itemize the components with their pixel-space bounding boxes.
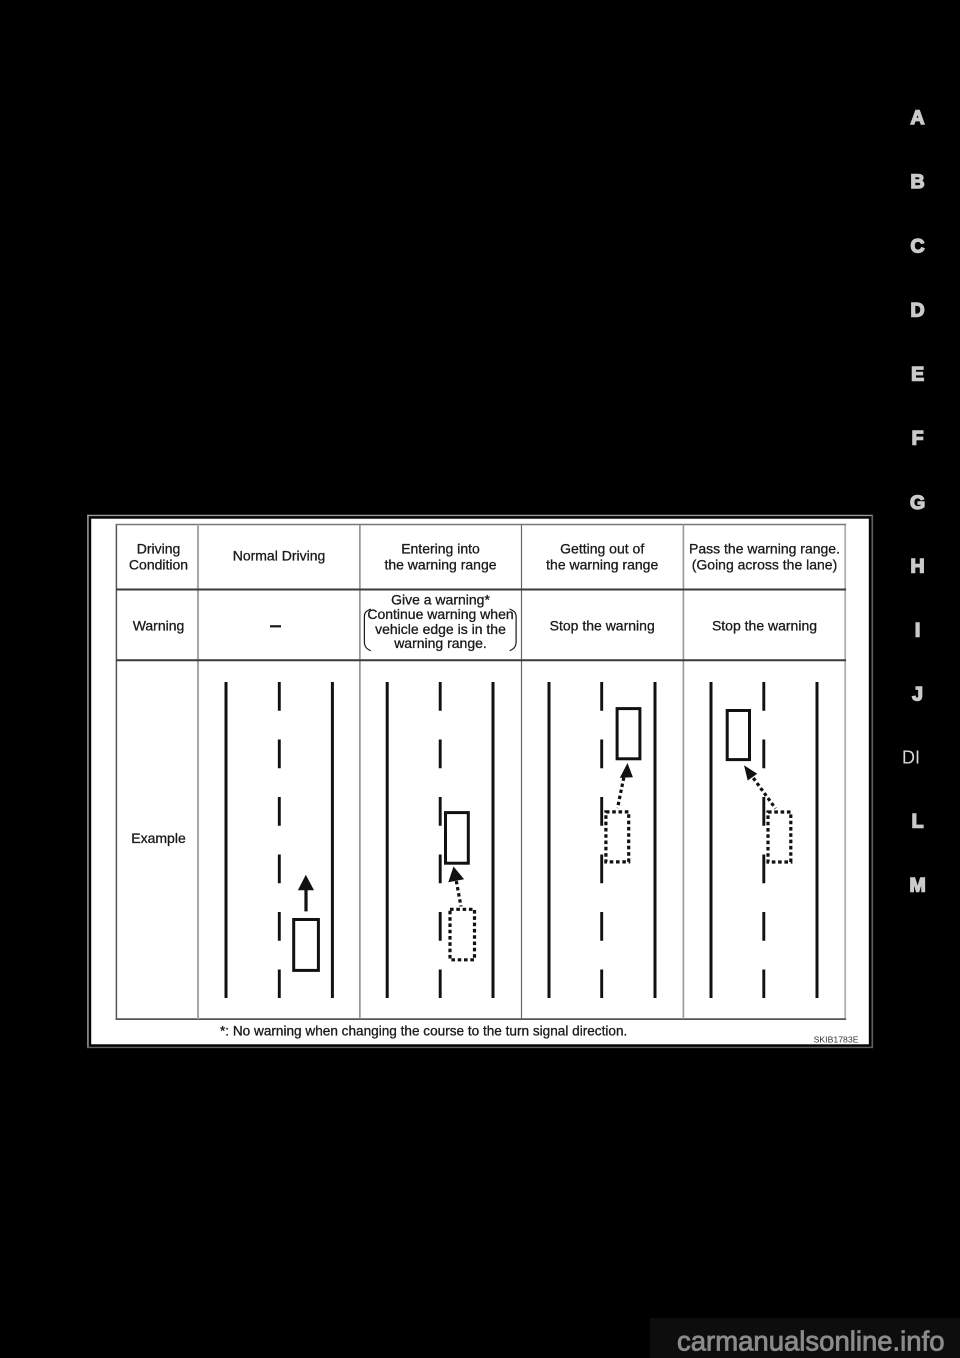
svg-text:A: A — [911, 107, 925, 129]
svg-text:SKIB1783E: SKIB1783E — [814, 1035, 859, 1045]
svg-text:Driving: Driving — [137, 540, 181, 556]
svg-text:Stop the warning: Stop the warning — [550, 618, 655, 634]
svg-text:Normal Driving: Normal Driving — [233, 548, 326, 564]
svg-text:G: G — [910, 492, 925, 514]
svg-text:B: B — [911, 171, 925, 193]
svg-text:carmanualsonline.info: carmanualsonline.info — [677, 1326, 945, 1357]
svg-text:Warning: Warning — [133, 618, 185, 634]
svg-text:I: I — [915, 620, 920, 642]
svg-text:the warning range: the warning range — [384, 557, 496, 573]
svg-text:Getting out of: Getting out of — [560, 541, 644, 557]
svg-text:F: F — [912, 428, 924, 450]
svg-text:Entering into: Entering into — [401, 541, 480, 557]
svg-text:*: No warning when changing th: *: No warning when changing the course t… — [220, 1024, 627, 1039]
svg-text:warning range.: warning range. — [393, 635, 487, 651]
svg-text:E: E — [911, 364, 924, 386]
svg-text:C: C — [911, 235, 925, 257]
svg-text:M: M — [909, 875, 925, 897]
svg-text:DI: DI — [902, 748, 920, 768]
svg-text:Stop the warning: Stop the warning — [712, 618, 817, 634]
svg-text:Condition: Condition — [129, 556, 188, 572]
svg-text:L: L — [912, 811, 924, 833]
svg-text:D: D — [911, 300, 925, 322]
svg-text:H: H — [911, 556, 925, 578]
svg-text:J: J — [912, 684, 923, 706]
svg-text:(Going across the lane): (Going across the lane) — [692, 557, 838, 573]
svg-text:Example: Example — [131, 830, 186, 846]
svg-text:Pass the warning range.: Pass the warning range. — [689, 541, 840, 557]
svg-text:Continue warning when: Continue warning when — [367, 606, 513, 622]
svg-text:the warning range: the warning range — [546, 557, 658, 573]
